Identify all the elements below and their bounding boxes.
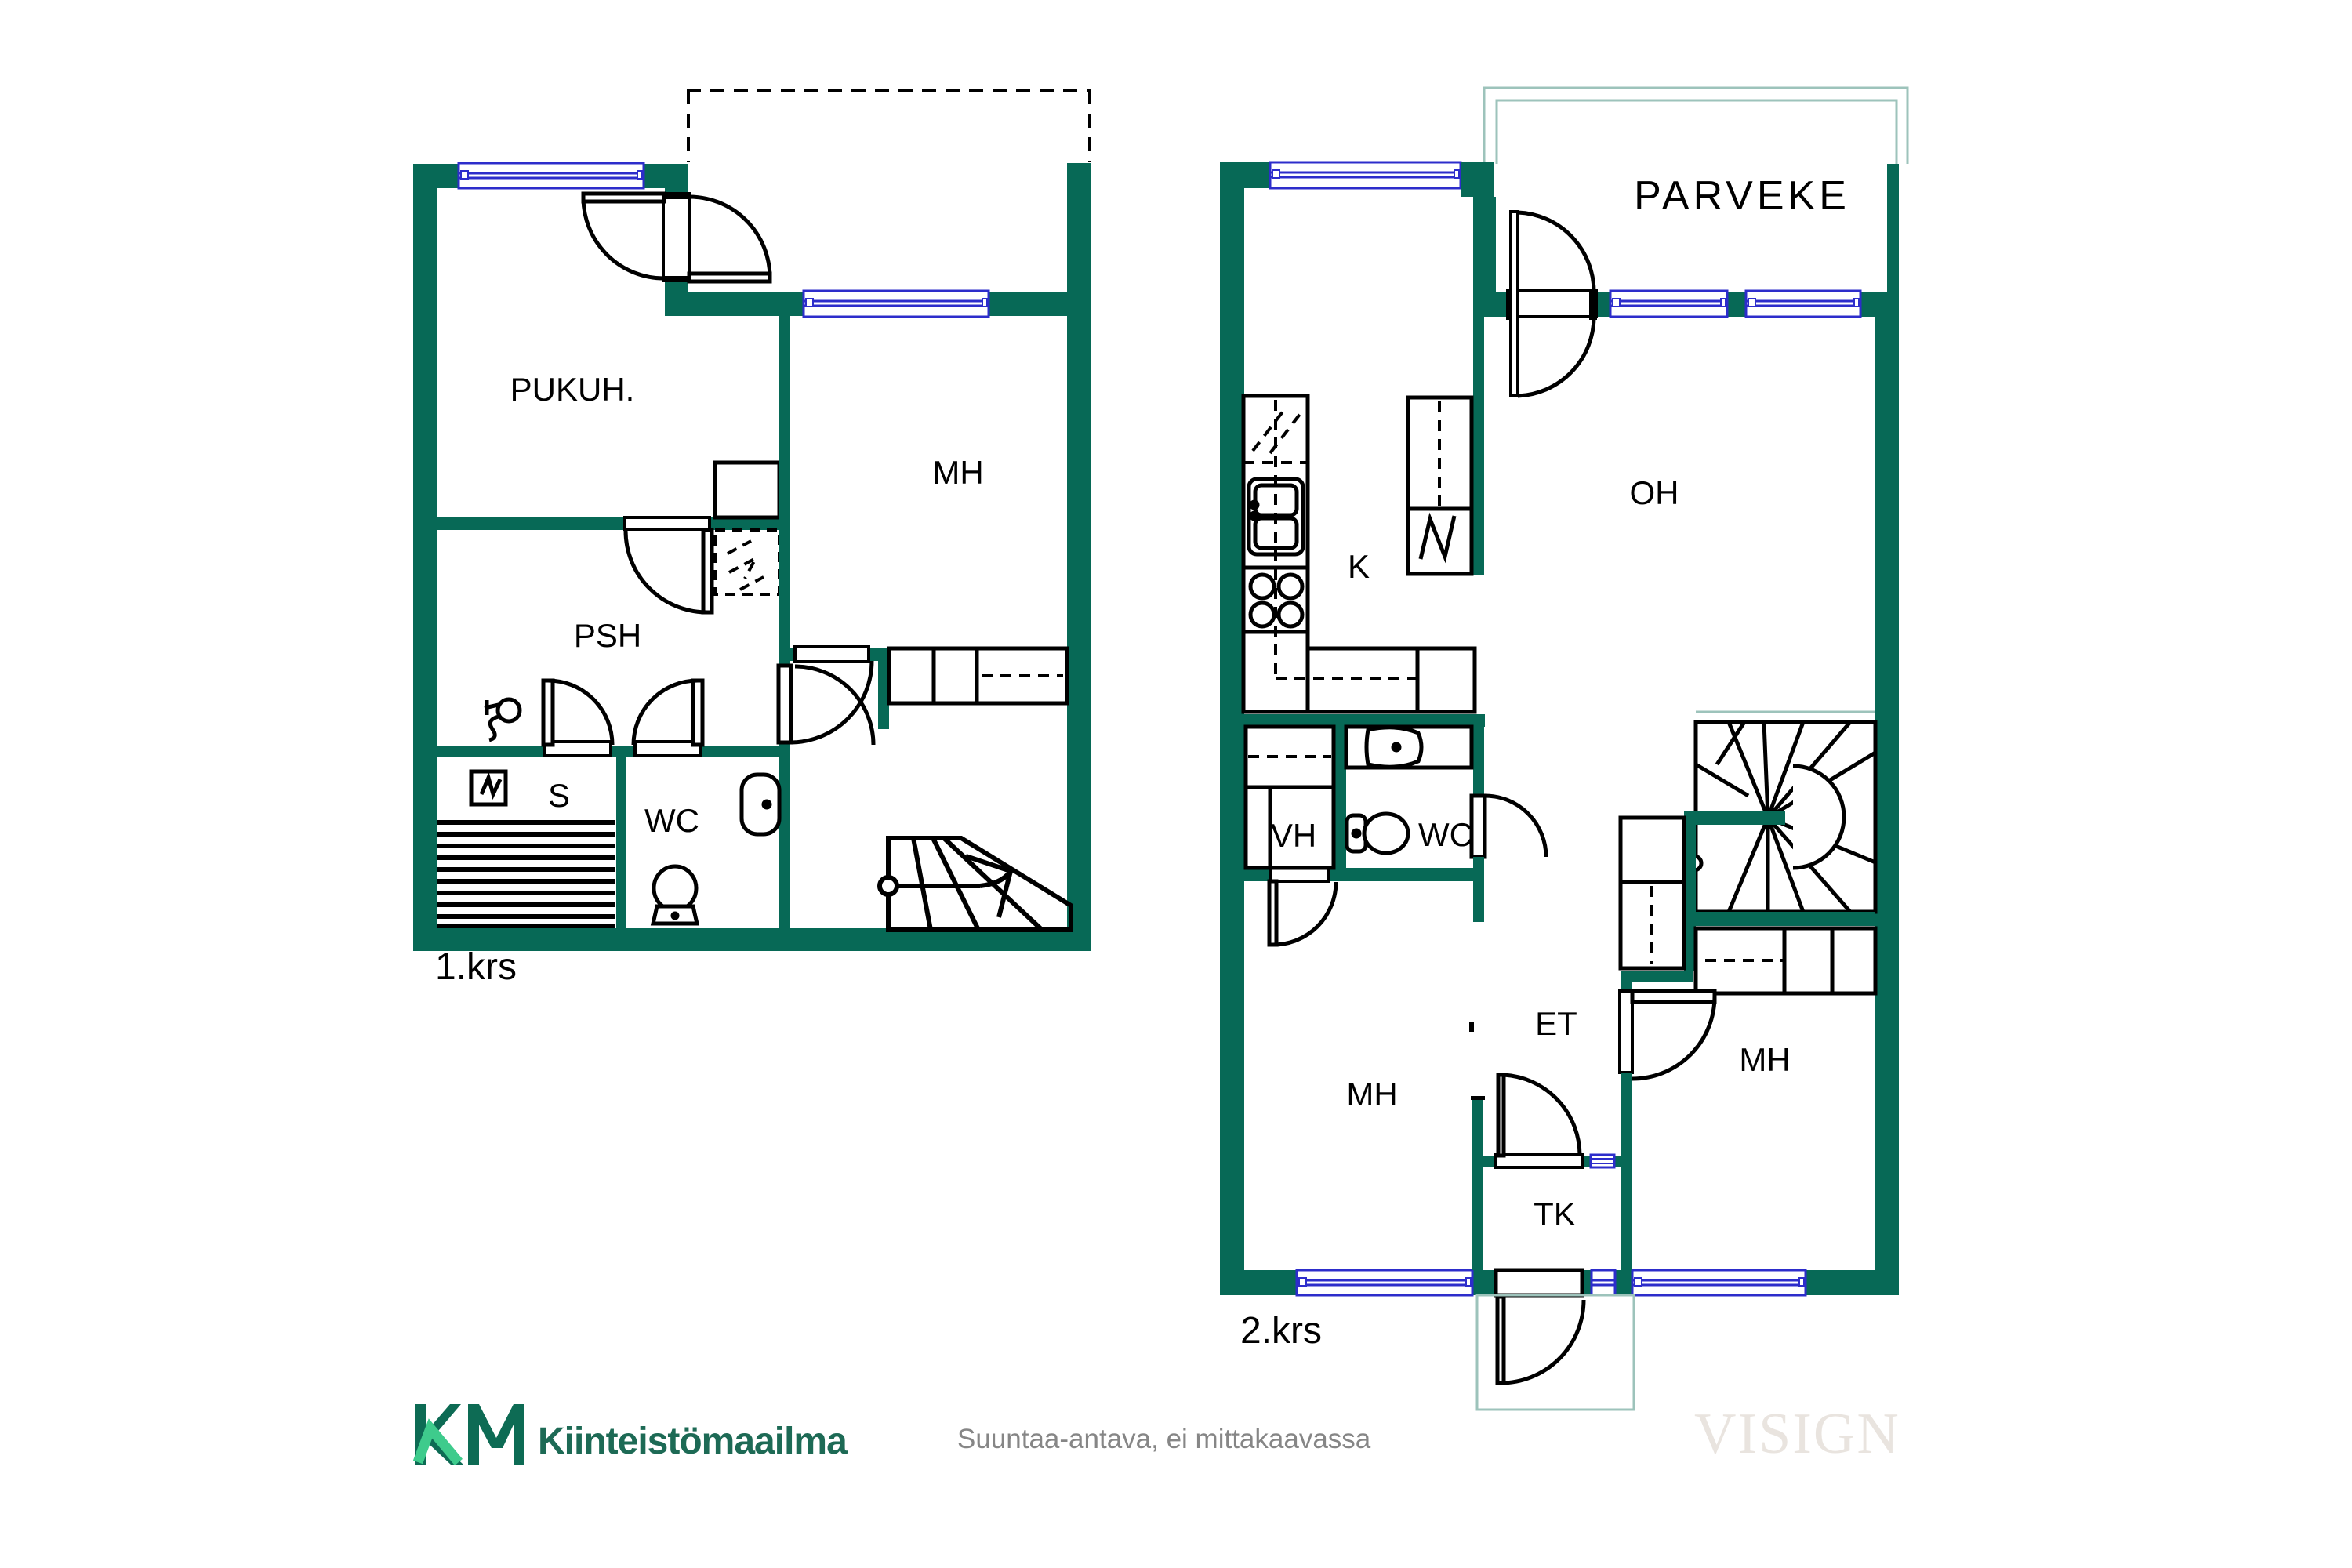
svg-text:MH: MH [1739, 1041, 1790, 1078]
svg-text:VISIGN: VISIGN [1694, 1402, 1900, 1466]
svg-text:PARVEKE: PARVEKE [1634, 173, 1850, 219]
svg-text:Suuntaa-antava, ei mittakaavas: Suuntaa-antava, ei mittakaavassa [957, 1424, 1371, 1454]
svg-text:PSH: PSH [574, 617, 641, 654]
svg-text:MH: MH [1346, 1076, 1397, 1112]
svg-text:MH: MH [932, 454, 983, 491]
svg-text:TK: TK [1534, 1196, 1576, 1232]
svg-text:ET: ET [1535, 1005, 1577, 1042]
svg-text:PUKUH.: PUKUH. [510, 371, 635, 408]
svg-text:Kiinteistömaailma: Kiinteistömaailma [538, 1421, 848, 1462]
svg-text:1.krs: 1.krs [435, 946, 517, 988]
svg-text:K: K [1348, 548, 1370, 585]
svg-text:WC: WC [644, 802, 699, 839]
svg-text:VH: VH [1271, 817, 1316, 854]
svg-text:OH: OH [1630, 474, 1679, 511]
svg-text:2.krs: 2.krs [1240, 1310, 1322, 1352]
svg-text:WC: WC [1418, 816, 1473, 853]
svg-text:S: S [548, 777, 570, 814]
